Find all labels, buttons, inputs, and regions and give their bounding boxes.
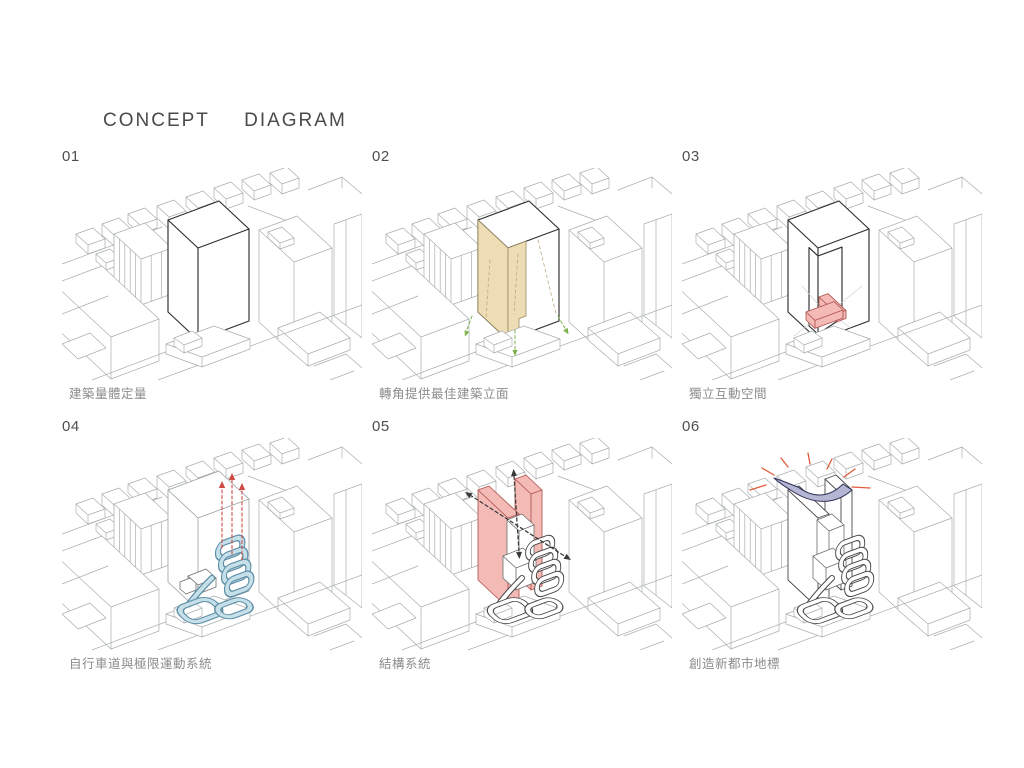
axonometric-drawing-bike-system bbox=[62, 438, 362, 650]
panel-number: 03 bbox=[682, 148, 982, 166]
axonometric-drawing-interactive-space bbox=[682, 168, 982, 380]
concept-panel-01: 01 建築量體定量 bbox=[62, 148, 362, 402]
concept-panel-05: 05 結構系統 bbox=[372, 418, 672, 672]
panel-caption: 自行車道與極限運動系統 bbox=[62, 653, 362, 672]
concept-panel-06: 06 創造新都市地標 bbox=[682, 418, 982, 672]
panel-caption: 創造新都市地標 bbox=[682, 653, 982, 672]
panel-number: 01 bbox=[62, 148, 362, 166]
panel-caption: 轉角提供最佳建築立面 bbox=[372, 383, 672, 402]
axonometric-drawing-corner-facade bbox=[372, 168, 672, 380]
panel-caption: 獨立互動空間 bbox=[682, 383, 982, 402]
panel-caption: 建築量體定量 bbox=[62, 383, 362, 402]
concept-panel-04: 04 自行車道與極限運動系統 bbox=[62, 418, 362, 672]
panel-number: 02 bbox=[372, 148, 672, 166]
concept-panel-03: 03 獨立互動空間 bbox=[682, 148, 982, 402]
panel-number: 06 bbox=[682, 418, 982, 436]
axonometric-drawing-massing bbox=[62, 168, 362, 380]
panel-caption: 結構系統 bbox=[372, 653, 672, 672]
panel-number: 05 bbox=[372, 418, 672, 436]
axonometric-drawing-structure bbox=[372, 438, 672, 650]
concept-diagram-page: CONCEPT DIAGRAM 01 建築量體定量 02 轉角提供最佳建築立面 … bbox=[0, 0, 1024, 768]
page-title: CONCEPT DIAGRAM bbox=[103, 110, 347, 132]
panel-number: 04 bbox=[62, 418, 362, 436]
concept-panel-02: 02 轉角提供最佳建築立面 bbox=[372, 148, 672, 402]
axonometric-drawing-landmark bbox=[682, 438, 982, 650]
